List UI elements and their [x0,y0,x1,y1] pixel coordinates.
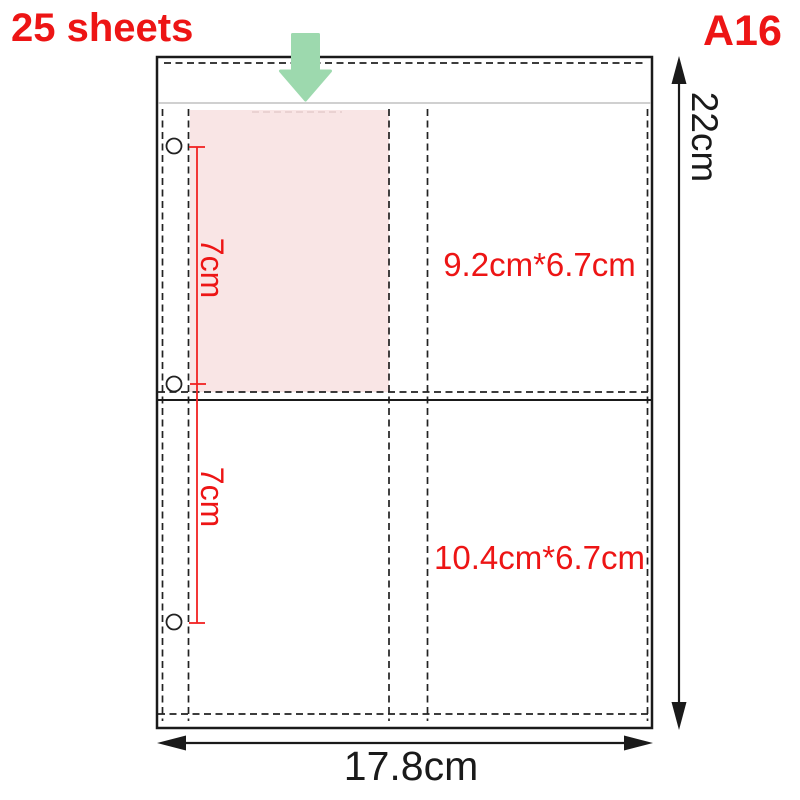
bottom-pocket-size-label: 10.4cm*6.7cm [427,541,652,574]
product-dimension-diagram: 25 sheets A16 9.2cm*6.7cm 10.4cm*6.7cm 1… [0,0,800,800]
top-pocket-size-label: 9.2cm*6.7cm [427,248,652,281]
sheet-count-label: 25 sheets [11,8,193,48]
model-code-label: A16 [703,10,782,53]
bottom-insert-height-label: 7cm [194,466,228,528]
page-width-label: 17.8cm [311,746,511,787]
binder-hole [167,377,182,392]
binder-hole [167,139,182,154]
binder-page-drawing [0,0,800,800]
page-height-label: 22cm [685,85,723,189]
top-insert-height-label: 7cm [194,237,228,299]
binder-hole [167,615,182,630]
